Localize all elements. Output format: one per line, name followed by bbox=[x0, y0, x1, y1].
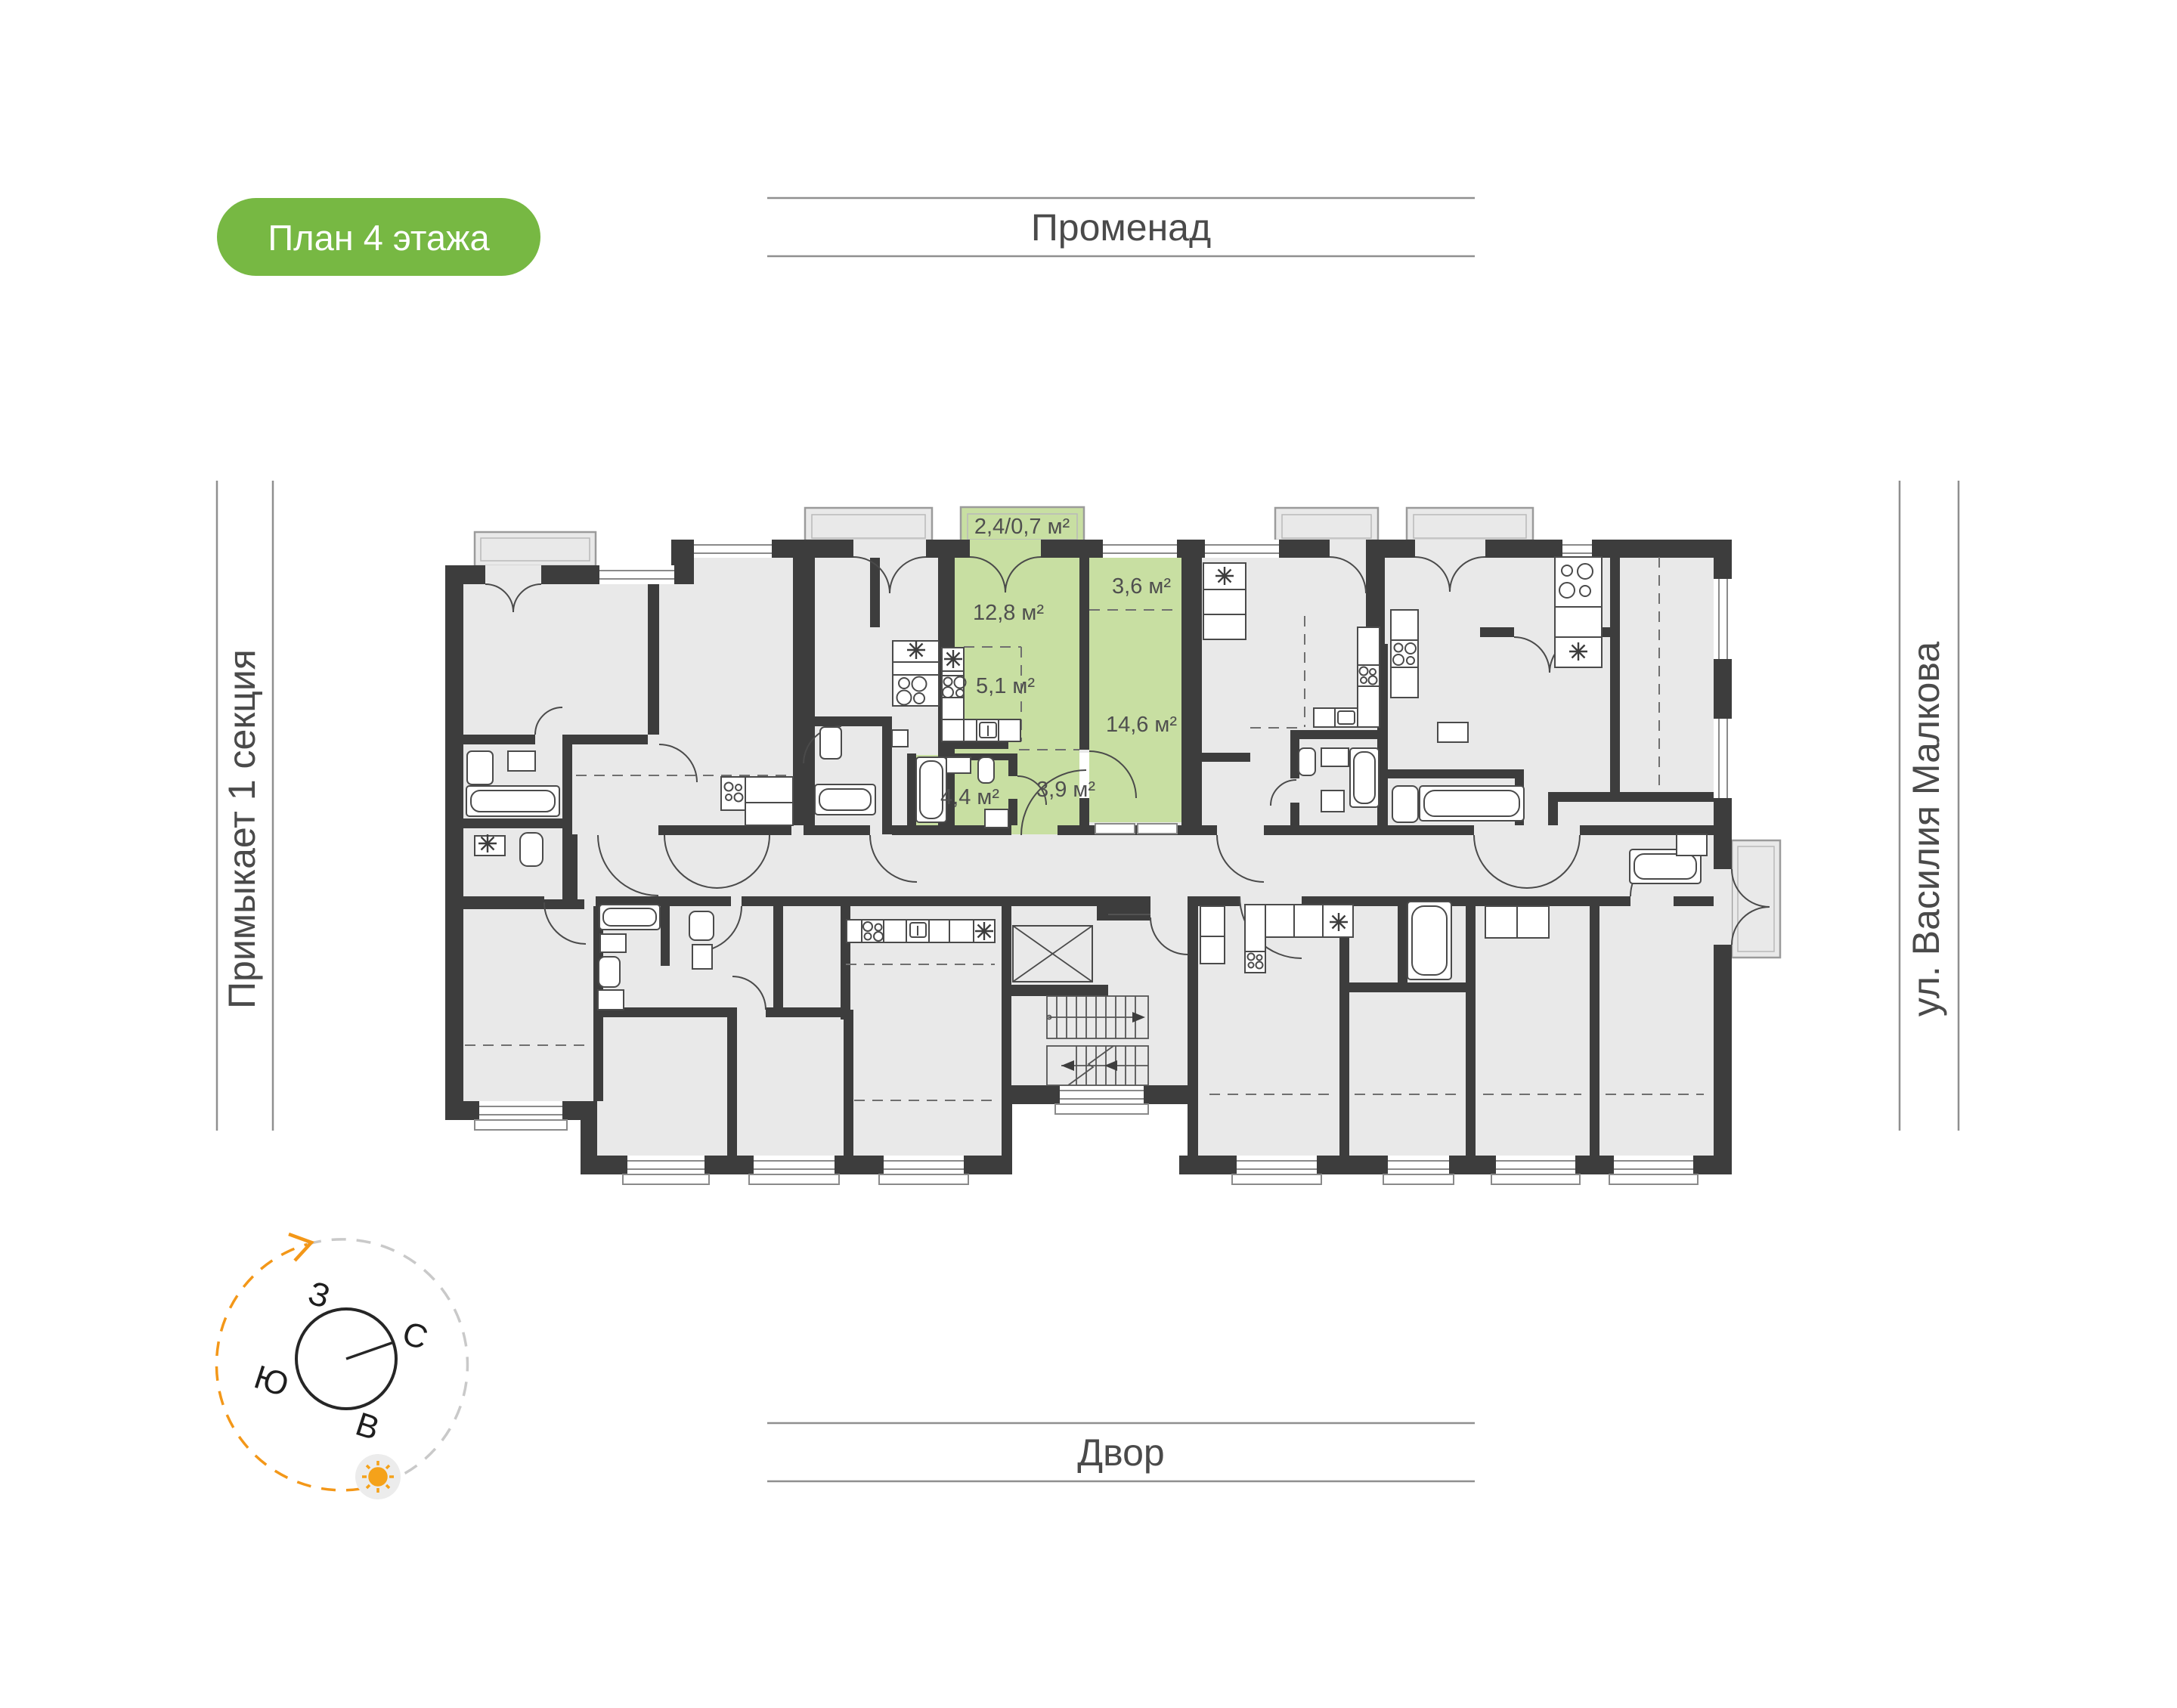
svg-text:План 4 этажа: План 4 этажа bbox=[268, 218, 490, 258]
svg-text:12,8 м²: 12,8 м² bbox=[973, 601, 1044, 625]
svg-text:5,1 м²: 5,1 м² bbox=[976, 674, 1035, 698]
svg-text:2,4/0,7 м²: 2,4/0,7 м² bbox=[974, 515, 1070, 539]
svg-text:ул. Василия Малкова: ул. Василия Малкова bbox=[1905, 642, 1947, 1016]
svg-text:З: З bbox=[304, 1274, 334, 1316]
svg-text:С: С bbox=[398, 1314, 432, 1357]
svg-text:В: В bbox=[351, 1406, 384, 1448]
svg-text:3,6 м²: 3,6 м² bbox=[1112, 574, 1171, 599]
svg-text:Примыкает 1 секция: Примыкает 1 секция bbox=[221, 649, 263, 1009]
svg-text:Двор: Двор bbox=[1077, 1431, 1164, 1474]
svg-text:3,9 м²: 3,9 м² bbox=[1036, 778, 1095, 802]
svg-text:14,6 м²: 14,6 м² bbox=[1106, 713, 1177, 737]
svg-text:Променад: Променад bbox=[1031, 206, 1211, 249]
svg-text:Ю: Ю bbox=[249, 1358, 293, 1403]
svg-text:4,4 м²: 4,4 м² bbox=[940, 785, 999, 809]
